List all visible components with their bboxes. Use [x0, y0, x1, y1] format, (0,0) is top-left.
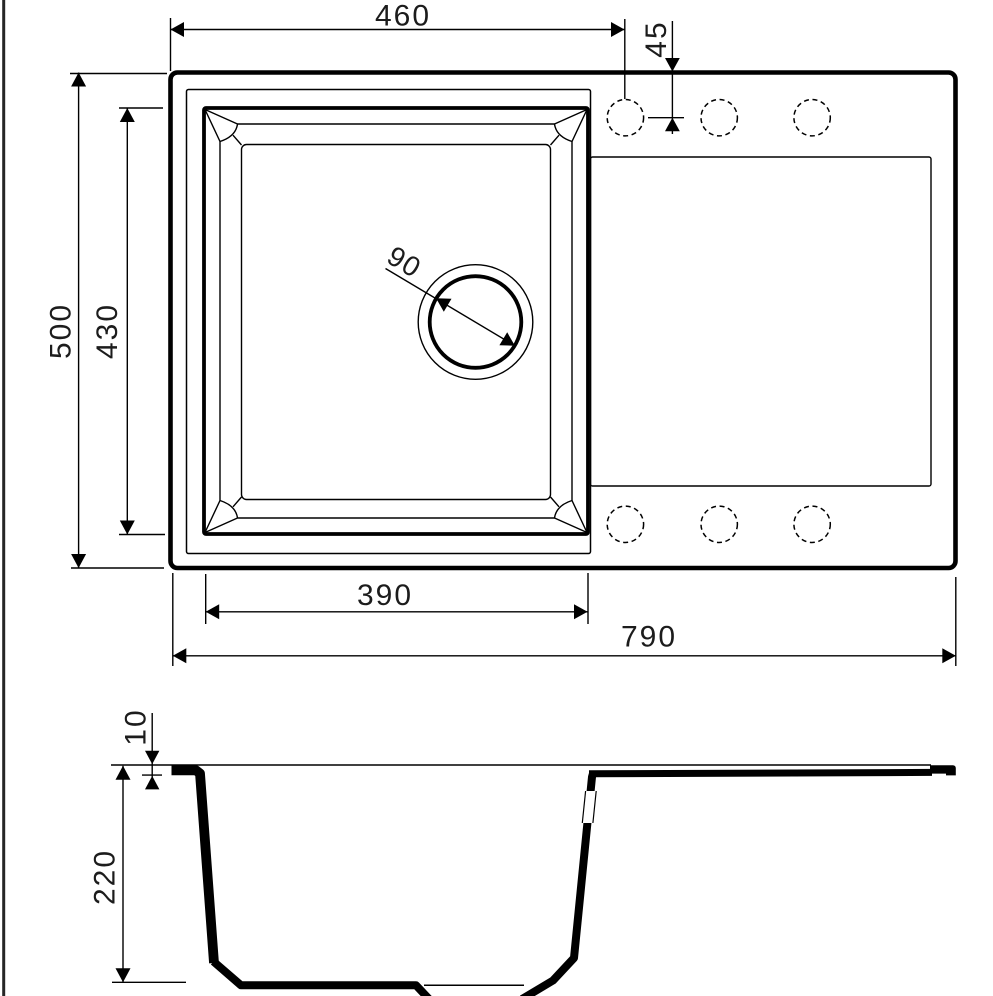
svg-text:10: 10 — [120, 708, 153, 745]
svg-text:500: 500 — [45, 303, 78, 359]
svg-text:430: 430 — [91, 303, 124, 359]
svg-text:790: 790 — [621, 621, 677, 654]
svg-text:460: 460 — [375, 0, 431, 33]
svg-text:45: 45 — [640, 20, 673, 57]
svg-text:390: 390 — [357, 579, 413, 612]
svg-text:220: 220 — [88, 849, 121, 905]
